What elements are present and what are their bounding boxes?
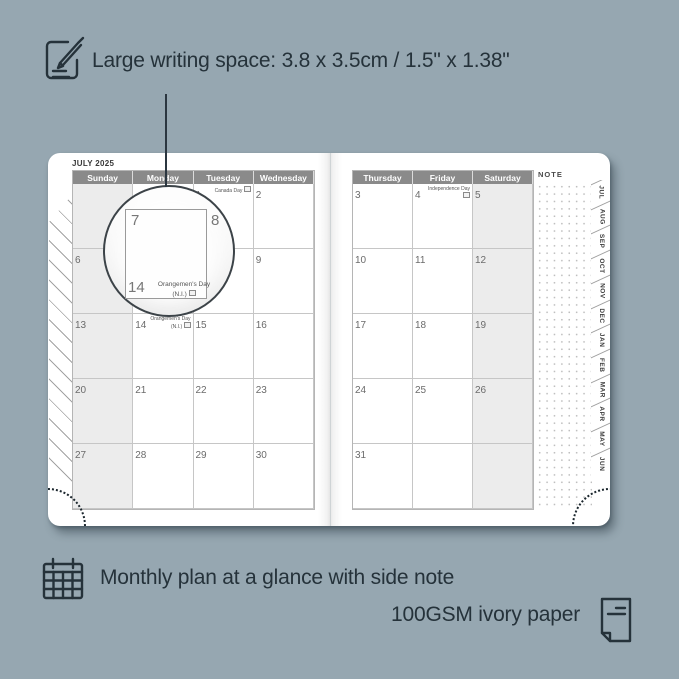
flag-icon bbox=[244, 186, 251, 192]
day-cell: 11 bbox=[413, 249, 473, 314]
bottom-caption-line1: Monthly plan at a glance with side note bbox=[100, 566, 454, 590]
month-tabs: JULAUGSEPOCTNOVDECJANFEBMARAPRMAYJUN bbox=[591, 180, 610, 477]
magnifier-circle: 7 8 14 Orangemen's Day (N.I.) bbox=[103, 185, 235, 317]
month-tab-label: NOV bbox=[598, 283, 605, 299]
note-dot-grid bbox=[536, 183, 592, 508]
day-cell: 12 bbox=[473, 249, 533, 314]
page-edge-hatch bbox=[49, 195, 72, 497]
top-caption: Large writing space: 3.8 x 3.5cm / 1.5" … bbox=[92, 49, 510, 73]
day-cell: 14Orangemen's Day (N.I.) bbox=[133, 314, 193, 379]
month-tab-label: AUG bbox=[598, 209, 605, 225]
day-cell: 28 bbox=[133, 444, 193, 509]
date-number: 28 bbox=[135, 450, 146, 461]
day-cell: 26 bbox=[473, 379, 533, 444]
pencil-note-icon bbox=[38, 33, 88, 85]
flag-icon bbox=[189, 290, 196, 296]
month-tab-label: JUN bbox=[598, 457, 605, 472]
calendar-right-page: ThursdayFridaySaturday34Independence Day… bbox=[352, 170, 534, 510]
day-header: Tuesday bbox=[194, 171, 254, 184]
month-title: JULY 2025 bbox=[72, 159, 114, 168]
day-cell: 2 bbox=[254, 184, 314, 249]
flag-icon bbox=[184, 322, 191, 328]
date-number: 15 bbox=[196, 320, 207, 331]
date-number: 16 bbox=[256, 320, 267, 331]
date-number: 6 bbox=[75, 255, 81, 266]
day-cell: 24 bbox=[353, 379, 413, 444]
day-header: Sunday bbox=[73, 171, 133, 184]
day-cell: 17 bbox=[353, 314, 413, 379]
day-cell: 21 bbox=[133, 379, 193, 444]
day-cell: 29 bbox=[194, 444, 254, 509]
holiday-label: Canada Day bbox=[208, 186, 251, 194]
magnified-day: 7 bbox=[131, 212, 139, 229]
month-tab-label: JUL bbox=[597, 185, 604, 199]
date-number: 31 bbox=[355, 450, 366, 461]
date-number: 19 bbox=[475, 320, 486, 331]
day-cell: 20 bbox=[73, 379, 133, 444]
day-cell: 15 bbox=[194, 314, 254, 379]
day-cell: 31 bbox=[353, 444, 413, 509]
month-tab-label: MAY bbox=[598, 431, 605, 446]
date-number: 3 bbox=[355, 190, 361, 201]
date-number: 2 bbox=[256, 190, 262, 201]
day-header: Saturday bbox=[473, 171, 533, 184]
date-number: 30 bbox=[256, 450, 267, 461]
date-number: 5 bbox=[475, 190, 481, 201]
magnified-holiday-name: Orangemen's Day bbox=[139, 281, 229, 288]
month-tab-label: APR bbox=[598, 407, 605, 422]
day-cell: 25 bbox=[413, 379, 473, 444]
paper-sheet-icon bbox=[593, 595, 639, 645]
date-number: 4 bbox=[415, 190, 421, 201]
day-header: Wednesday bbox=[254, 171, 314, 184]
day-cell: 22 bbox=[194, 379, 254, 444]
flag-icon bbox=[463, 192, 470, 198]
day-cell: 19 bbox=[473, 314, 533, 379]
month-tab-label: DEC bbox=[598, 308, 605, 323]
magnified-day: 8 bbox=[211, 212, 219, 229]
day-header: Monday bbox=[133, 171, 193, 184]
day-cell: 5 bbox=[473, 184, 533, 249]
day-cell: 23 bbox=[254, 379, 314, 444]
month-tab-label: FEB bbox=[598, 358, 605, 373]
day-cell bbox=[413, 444, 473, 509]
date-number: 23 bbox=[256, 385, 267, 396]
date-number: 22 bbox=[196, 385, 207, 396]
day-cell: 9 bbox=[254, 249, 314, 314]
day-cell: 18 bbox=[413, 314, 473, 379]
planner-spread: JULY 2025 SundayMondayTuesdayWednesday1C… bbox=[48, 153, 610, 526]
date-number: 14 bbox=[135, 320, 146, 331]
magnifier-leader-line bbox=[165, 94, 167, 187]
magnified-holiday-region: (N.I.) bbox=[139, 290, 229, 298]
holiday-label: Independence Day bbox=[427, 186, 470, 200]
day-cell bbox=[473, 444, 533, 509]
month-tab-label: JAN bbox=[598, 333, 605, 348]
date-number: 12 bbox=[475, 255, 486, 266]
date-number: 9 bbox=[256, 255, 262, 266]
month-tab-label: SEP bbox=[598, 234, 605, 249]
day-header: Friday bbox=[413, 171, 473, 184]
date-number: 27 bbox=[75, 450, 86, 461]
day-cell: 27 bbox=[73, 444, 133, 509]
note-label: NOTE bbox=[538, 170, 563, 179]
day-cell: 10 bbox=[353, 249, 413, 314]
date-number: 11 bbox=[415, 255, 425, 266]
date-number: 21 bbox=[135, 385, 146, 396]
date-number: 26 bbox=[475, 385, 486, 396]
date-number: 17 bbox=[355, 320, 366, 331]
holiday-label: Orangemen's Day (N.I.) bbox=[147, 316, 190, 330]
holiday-region-text: (N.I.) bbox=[172, 291, 186, 298]
calendar-grid-icon bbox=[40, 556, 86, 602]
month-tab-label: MAR bbox=[599, 381, 606, 397]
month-tab-label: OCT bbox=[598, 258, 605, 273]
day-cell: 4Independence Day bbox=[413, 184, 473, 249]
date-number: 29 bbox=[196, 450, 207, 461]
date-number: 25 bbox=[415, 385, 426, 396]
bottom-caption-line2: 100GSM ivory paper bbox=[391, 603, 580, 627]
day-header: Thursday bbox=[353, 171, 413, 184]
day-cell: 30 bbox=[254, 444, 314, 509]
date-number: 10 bbox=[355, 255, 366, 266]
date-number: 20 bbox=[75, 385, 86, 396]
day-cell: 16 bbox=[254, 314, 314, 379]
day-cell: 3 bbox=[353, 184, 413, 249]
spine-line bbox=[330, 153, 331, 526]
day-cell: 13 bbox=[73, 314, 133, 379]
date-number: 24 bbox=[355, 385, 366, 396]
date-number: 18 bbox=[415, 320, 426, 331]
date-number: 13 bbox=[75, 320, 86, 331]
